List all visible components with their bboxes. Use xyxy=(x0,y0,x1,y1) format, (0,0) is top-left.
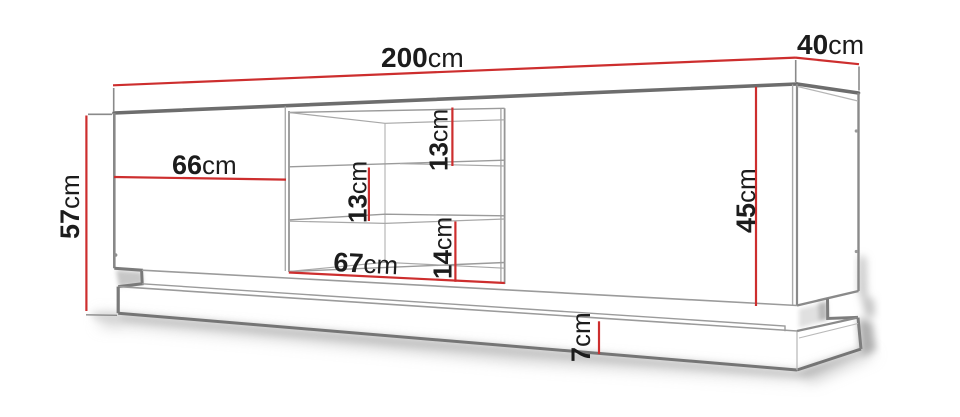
svg-text:45cm: 45cm xyxy=(731,168,761,233)
svg-text:7cm: 7cm xyxy=(566,312,596,362)
svg-text:13cm: 13cm xyxy=(424,109,454,171)
svg-text:40cm: 40cm xyxy=(797,29,864,60)
svg-text:200cm: 200cm xyxy=(381,42,464,73)
svg-text:66cm: 66cm xyxy=(172,150,237,180)
svg-text:13cm: 13cm xyxy=(343,161,373,223)
svg-text:57cm: 57cm xyxy=(55,174,85,239)
svg-text:14cm: 14cm xyxy=(428,217,458,279)
svg-text:67cm: 67cm xyxy=(333,247,399,280)
